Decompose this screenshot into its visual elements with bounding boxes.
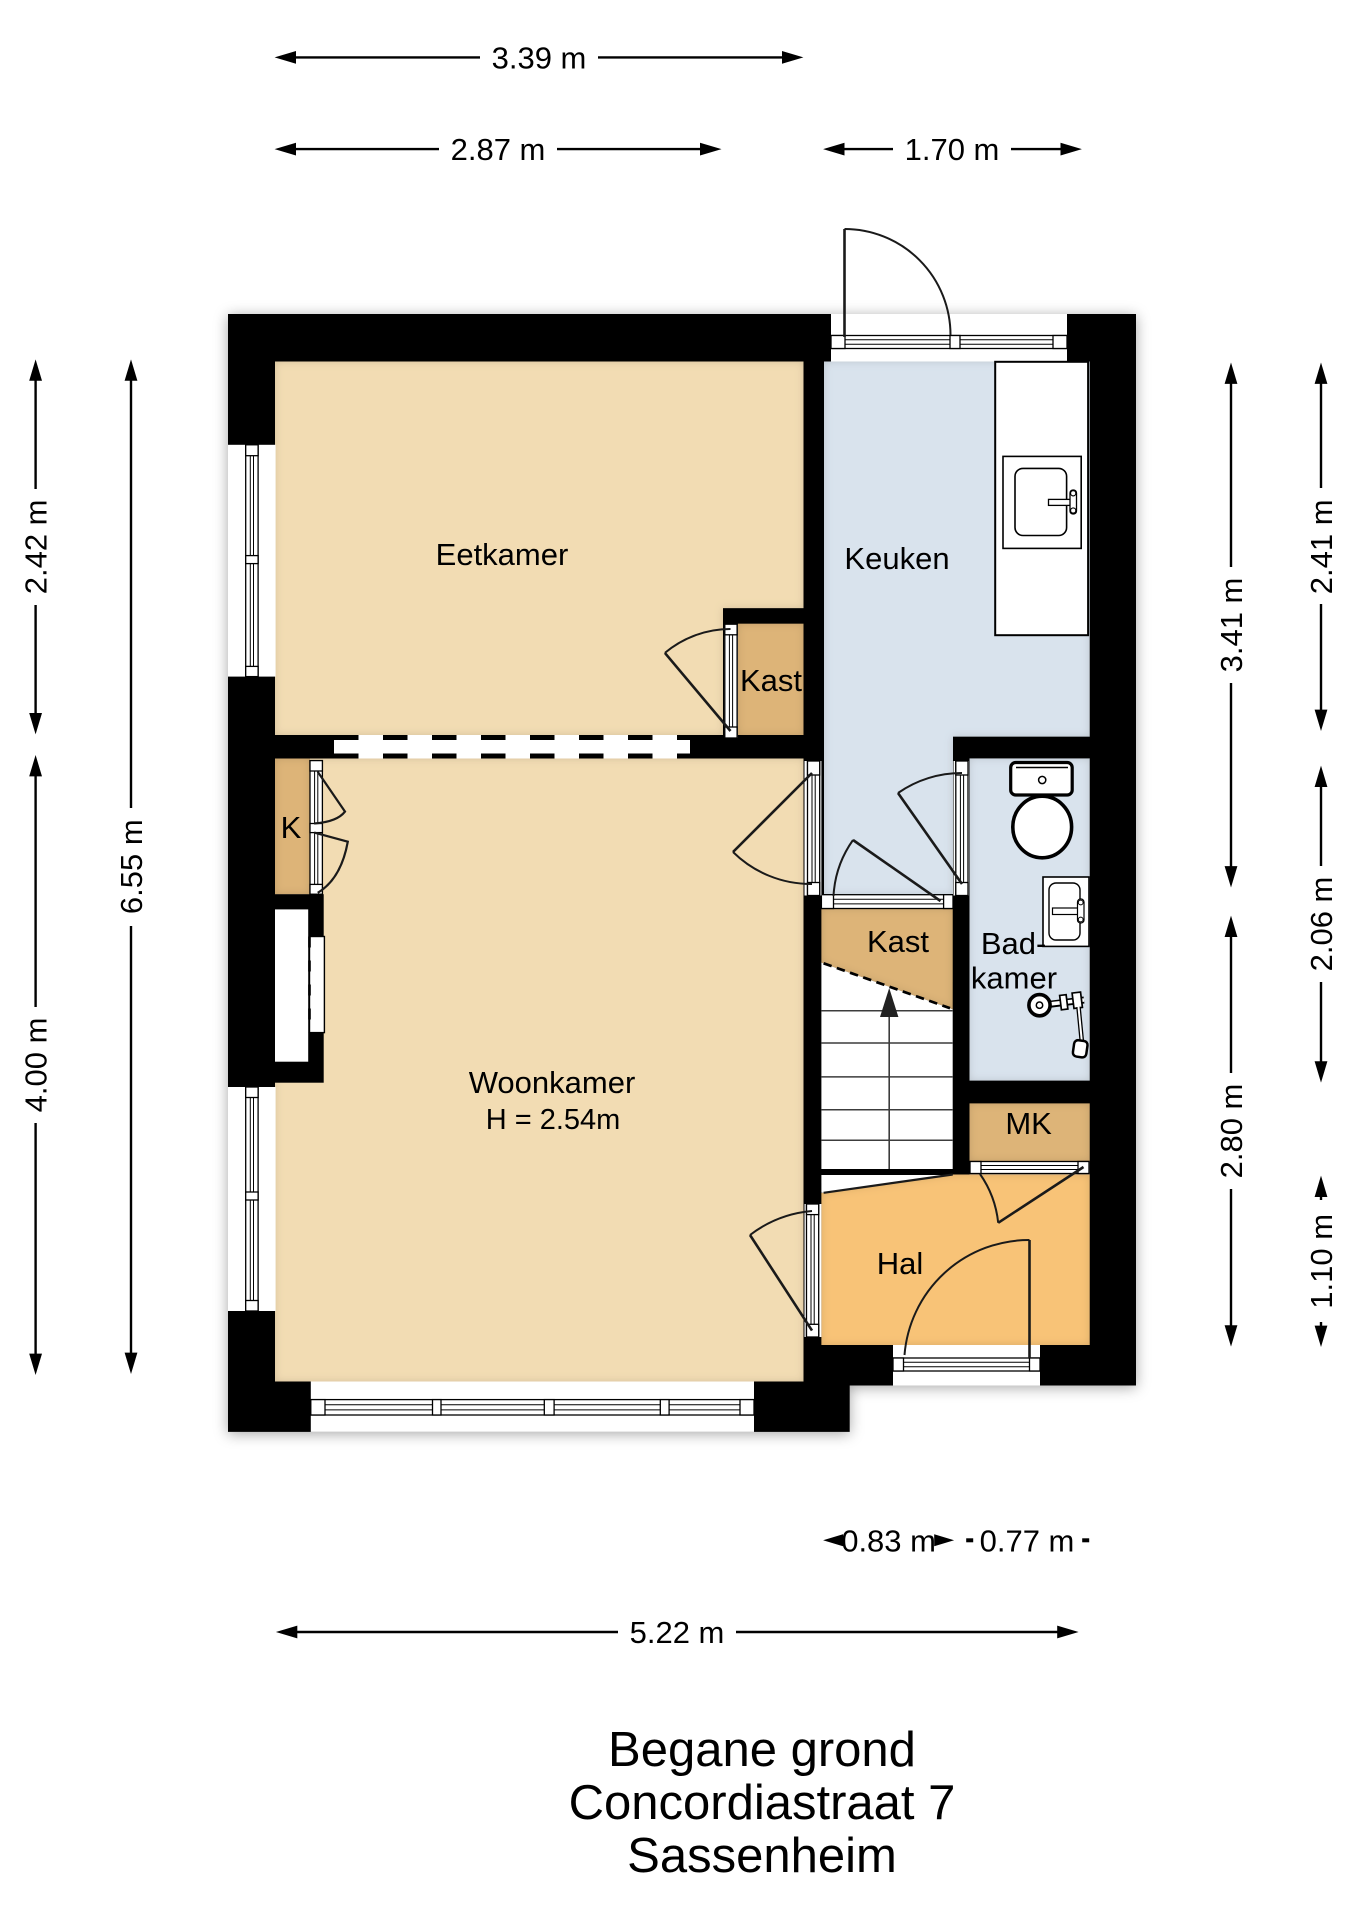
svg-text:Hal: Hal [877, 1246, 924, 1281]
svg-text:Woonkamer: Woonkamer [469, 1065, 636, 1100]
svg-text:Begane grond: Begane grond [608, 1723, 916, 1777]
svg-text:5.22 m: 5.22 m [630, 1615, 725, 1650]
svg-text:2.42 m: 2.42 m [19, 500, 54, 595]
svg-text:2.06 m: 2.06 m [1304, 877, 1339, 972]
svg-text:Sassenheim: Sassenheim [627, 1829, 897, 1883]
svg-text:2.80 m: 2.80 m [1214, 1084, 1249, 1179]
svg-text:K: K [281, 810, 302, 845]
svg-text:1.10 m: 1.10 m [1304, 1214, 1339, 1309]
svg-text:1.70 m: 1.70 m [905, 132, 1000, 167]
svg-text:0.77 m: 0.77 m [980, 1523, 1075, 1558]
svg-text:6.55 m: 6.55 m [114, 819, 149, 914]
svg-text:2.41 m: 2.41 m [1304, 499, 1339, 594]
svg-text:3.39 m: 3.39 m [492, 40, 587, 75]
svg-text:Kast: Kast [867, 924, 929, 959]
svg-text:H = 2.54m: H = 2.54m [486, 1104, 621, 1136]
svg-text:Bad-: Bad- [981, 926, 1046, 961]
svg-text:4.00 m: 4.00 m [19, 1018, 54, 1113]
svg-text:kamer: kamer [971, 961, 1057, 996]
svg-text:MK: MK [1005, 1106, 1052, 1141]
svg-text:Kast: Kast [740, 663, 802, 698]
svg-text:Concordiastraat 7: Concordiastraat 7 [569, 1776, 956, 1830]
svg-text:Eetkamer: Eetkamer [436, 537, 569, 572]
svg-text:Keuken: Keuken [844, 541, 949, 576]
svg-text:2.87 m: 2.87 m [451, 132, 546, 167]
svg-text:0.83 m: 0.83 m [841, 1523, 936, 1558]
svg-text:3.41 m: 3.41 m [1214, 578, 1249, 673]
